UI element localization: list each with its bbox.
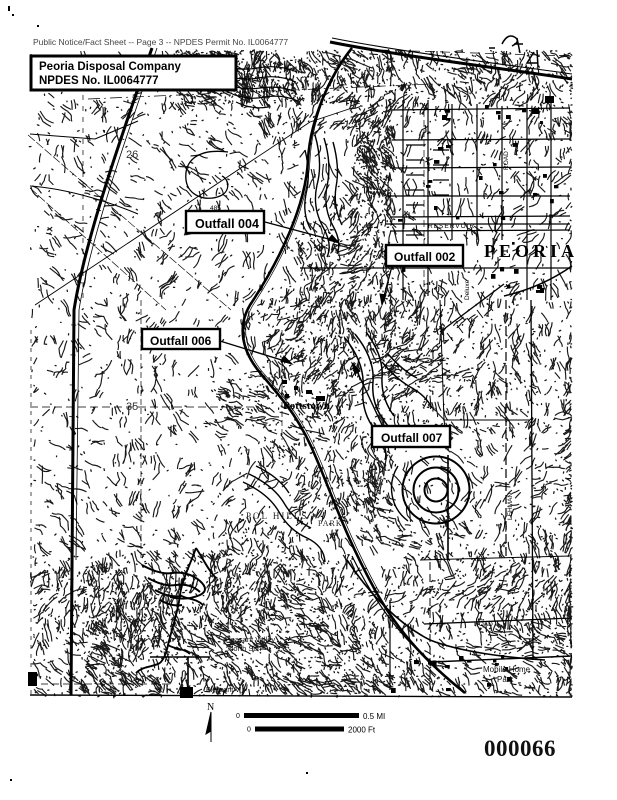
svg-text:RESERVOIR: RESERVOIR [428, 223, 475, 230]
svg-text:ROAD: ROAD [503, 151, 510, 170]
svg-text:LEHMAN: LEHMAN [507, 493, 514, 520]
svg-text:Pleasant V: Pleasant V [206, 687, 240, 694]
svg-text:PEORIA: PEORIA [484, 241, 578, 261]
svg-text:Mobile Home: Mobile Home [483, 665, 531, 674]
svg-text:NPDES No. IL0064777: NPDES No. IL0064777 [39, 75, 159, 87]
svg-text:Deluxe: Deluxe [464, 279, 471, 300]
svg-text:Park: Park [497, 675, 514, 684]
svg-text:Outfall 006: Outfall 006 [150, 334, 212, 348]
svg-text:PARK: PARK [318, 519, 343, 528]
svg-text:35: 35 [126, 401, 138, 413]
svg-text:North Sch: North Sch [228, 644, 261, 653]
svg-text:26: 26 [126, 149, 138, 161]
svg-text:N: N [207, 702, 214, 713]
svg-text:POL HILLS: POL HILLS [246, 511, 308, 521]
svg-text:0: 0 [236, 713, 240, 720]
svg-text:Peoria Disposal Company: Peoria Disposal Company [39, 61, 181, 73]
svg-text:Pottstown: Pottstown [283, 400, 330, 412]
svg-text:Outfall 007: Outfall 007 [381, 431, 443, 445]
svg-text:2000 Ft: 2000 Ft [348, 726, 376, 735]
svg-text:Public Notice/Fact Sheet -- Pa: Public Notice/Fact Sheet -- Page 3 -- NP… [33, 37, 288, 47]
svg-text:0.5 MI: 0.5 MI [363, 712, 385, 721]
svg-text:Pleasant Valley: Pleasant Valley [224, 635, 275, 644]
svg-text:Outfall 002: Outfall 002 [394, 250, 456, 264]
svg-text:Outfall 004: Outfall 004 [195, 217, 259, 231]
svg-text:0: 0 [247, 727, 251, 734]
svg-text:000066: 000066 [484, 736, 556, 761]
svg-text:ROAD: ROAD [474, 621, 493, 628]
